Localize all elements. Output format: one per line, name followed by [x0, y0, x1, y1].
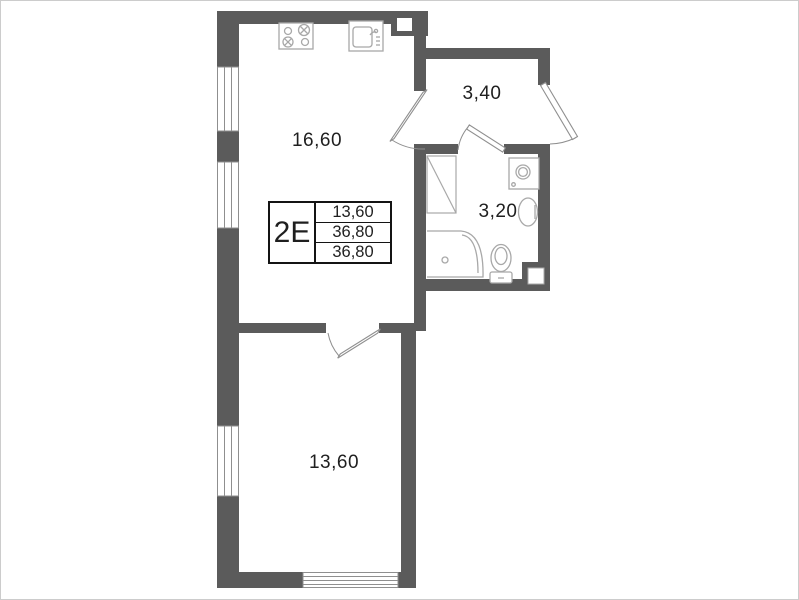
vent-notch-icon — [397, 18, 412, 31]
floor-plan-drawing — [1, 1, 799, 600]
room-label-kitchen-living: 16,60 — [279, 130, 355, 152]
utility-duct-icon — [427, 156, 456, 213]
washing-machine-icon — [509, 158, 539, 189]
unit-area-rows: 13,60 36,80 36,80 — [316, 203, 390, 262]
floor-plan: 16,60 3,40 3,20 13,60 2E 13,60 36,80 36,… — [0, 0, 799, 600]
room-label-hallway: 3,40 — [451, 83, 513, 105]
living-area-value: 13,60 — [316, 203, 390, 223]
total-area-with-balcony-value: 36,80 — [316, 243, 390, 262]
duct-shaft-icon — [522, 262, 550, 291]
wall-room-divider-left — [217, 323, 326, 333]
toilet-icon — [490, 245, 512, 284]
door-entrance — [541, 83, 578, 145]
wall-hall-top — [421, 48, 550, 59]
room-label-bathroom: 3,20 — [467, 201, 529, 223]
window-bedroom-left — [218, 426, 239, 496]
total-area-value: 36,80 — [316, 223, 390, 243]
room-label-bedroom: 13,60 — [297, 452, 371, 474]
stove-icon — [279, 23, 313, 49]
window-bedroom-bottom — [303, 573, 398, 588]
kitchen-sink-icon — [349, 21, 383, 51]
door-kitchen-hall — [390, 90, 427, 149]
unit-info-table: 2E 13,60 36,80 36,80 — [268, 201, 392, 264]
wall-entry-right — [538, 48, 550, 85]
wall-kitchen-hall-lower — [414, 149, 426, 331]
window-kitchen-2 — [218, 162, 239, 228]
window-kitchen-1 — [218, 67, 239, 131]
wall-bedroom-right — [401, 323, 416, 588]
shower-tray-icon — [427, 231, 483, 277]
unit-type-cell: 2E — [270, 203, 316, 262]
door-bathroom — [458, 125, 505, 152]
door-bedroom — [328, 329, 380, 358]
